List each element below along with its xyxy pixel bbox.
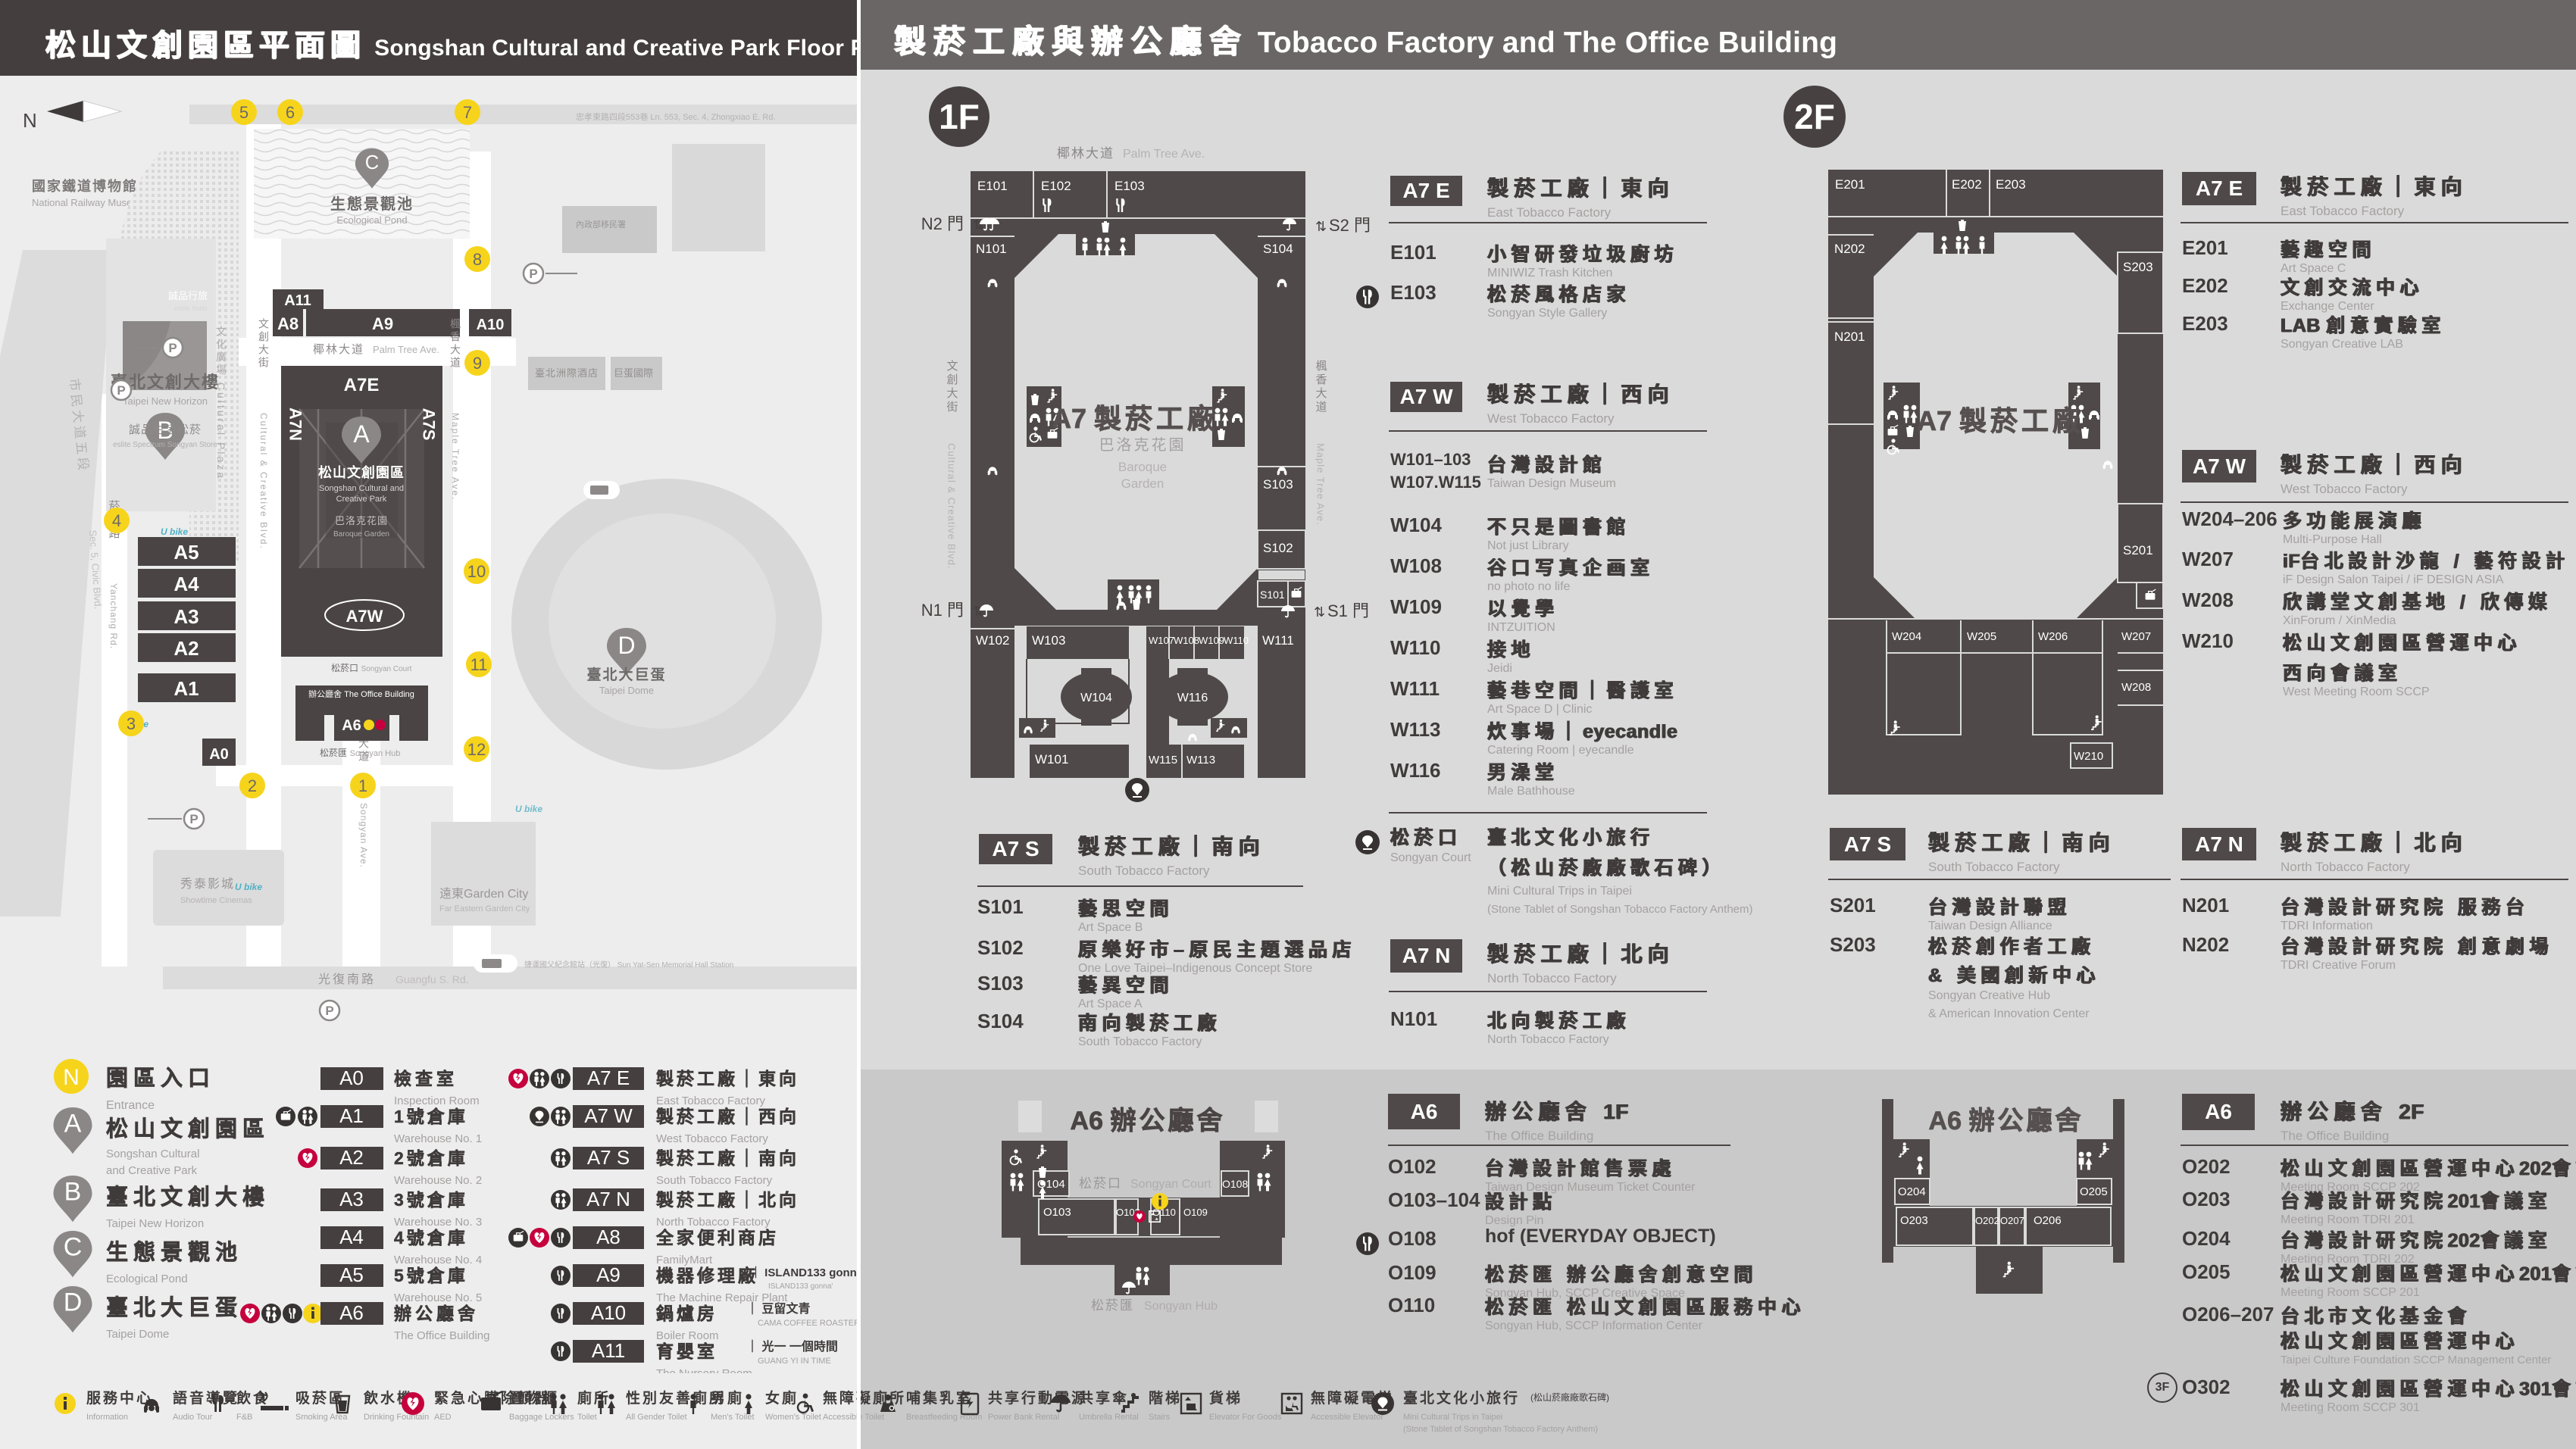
svg-text:2號倉庫: 2號倉庫	[394, 1148, 468, 1168]
svg-text:內政部移民署: 內政部移民署	[576, 219, 626, 230]
svg-text:The Office Building: The Office Building	[394, 1329, 489, 1342]
svg-text:Warehouse No. 5: Warehouse No. 5	[394, 1291, 482, 1304]
svg-text:A9: A9	[372, 314, 393, 333]
svg-text:O103: O103	[1043, 1206, 1071, 1219]
svg-text:Songyan Hub: Songyan Hub	[1144, 1300, 1218, 1313]
svg-text:A7 W: A7 W	[584, 1104, 633, 1127]
svg-text:A10: A10	[591, 1301, 626, 1324]
svg-text:廁所: 廁所	[577, 1389, 611, 1407]
svg-text:eslite Spectrum Songyan Store: eslite Spectrum Songyan Store	[113, 441, 217, 449]
svg-text:Power Bank Rental: Power Bank Rental	[988, 1413, 1059, 1422]
svg-text:W115: W115	[1149, 754, 1177, 767]
svg-text:松菸口: 松菸口	[1079, 1176, 1122, 1191]
svg-text:eslite hotel: eslite hotel	[174, 304, 207, 312]
svg-text:A8: A8	[596, 1226, 621, 1248]
svg-text:哺集乳室: 哺集乳室	[906, 1389, 973, 1407]
svg-text:E103: E103	[1114, 179, 1145, 193]
svg-text:E201: E201	[1835, 177, 1865, 192]
svg-text:U bike: U bike	[161, 526, 188, 537]
svg-text:臺北文創大樓: 臺北文創大樓	[106, 1184, 270, 1210]
svg-text:A6: A6	[342, 717, 361, 734]
svg-text:A6: A6	[339, 1301, 364, 1324]
svg-text:Creative Park: Creative Park	[336, 495, 387, 504]
svg-text:椰林大道: 椰林大道	[313, 343, 364, 356]
svg-text:N101: N101	[976, 242, 1007, 256]
svg-text:Taipei New Horizon: Taipei New Horizon	[123, 395, 208, 407]
svg-text:A4: A4	[174, 573, 199, 595]
svg-text:Palm Tree Ave.: Palm Tree Ave.	[373, 344, 439, 355]
svg-text:Songshan Cultural: Songshan Cultural	[106, 1148, 199, 1160]
svg-text:10: 10	[467, 562, 486, 581]
svg-text:Taipei Dome: Taipei Dome	[599, 685, 654, 696]
svg-text:鍋爐房: 鍋爐房	[656, 1304, 717, 1323]
svg-text:Songshan Cultural and: Songshan Cultural and	[319, 484, 404, 493]
svg-text:2: 2	[248, 776, 257, 795]
svg-text:A8: A8	[277, 314, 299, 333]
svg-text:A4: A4	[339, 1226, 364, 1248]
svg-text:Accessible Elevator: Accessible Elevator	[1311, 1413, 1383, 1422]
svg-text:松菸匯: 松菸匯	[320, 748, 347, 758]
svg-text:A6 辦公廳舍: A6 辦公廳舍	[1071, 1106, 1226, 1135]
svg-text:3: 3	[127, 714, 136, 733]
svg-text:S203: S203	[2123, 260, 2153, 274]
svg-text:A: A	[353, 420, 370, 448]
svg-text:Inspection Room: Inspection Room	[394, 1095, 480, 1107]
svg-text:N201: N201	[1834, 329, 1865, 344]
svg-text:1號倉庫: 1號倉庫	[394, 1107, 468, 1126]
svg-text:A2: A2	[339, 1146, 364, 1169]
svg-text:女廁: 女廁	[765, 1389, 799, 1407]
svg-text:Palm Tree Ave.: Palm Tree Ave.	[1123, 148, 1205, 161]
svg-text:O109: O109	[1183, 1207, 1208, 1218]
svg-text:階梯: 階梯	[1149, 1389, 1182, 1407]
svg-text:巴洛克花園: 巴洛克花園	[335, 515, 388, 526]
svg-text:W101: W101	[1035, 752, 1068, 767]
svg-text:U bike: U bike	[515, 804, 542, 814]
svg-text:W108: W108	[1174, 635, 1199, 646]
svg-text:Guangfu S. Rd.: Guangfu S. Rd.	[395, 973, 469, 985]
svg-text:｜ ISLAND133 gonna': ｜ ISLAND133 gonna'	[750, 1266, 859, 1279]
svg-text:S101: S101	[1260, 589, 1285, 601]
svg-text:O108: O108	[1222, 1178, 1248, 1190]
svg-text:楓香大道: 楓香大道	[449, 318, 461, 370]
svg-text:D: D	[617, 632, 635, 659]
svg-text:男廁: 男廁	[711, 1389, 744, 1407]
svg-text:文創大街: 文創大街	[946, 360, 958, 414]
svg-text:A7W: A7W	[346, 607, 383, 626]
svg-text:O204: O204	[1898, 1185, 1926, 1198]
svg-text:S2 門: S2 門	[1329, 216, 1371, 235]
svg-text:AED: AED	[434, 1413, 452, 1422]
svg-text:Baroque Garden: Baroque Garden	[333, 530, 389, 539]
svg-text:檢查室: 檢查室	[394, 1069, 458, 1088]
svg-text:F&B: F&B	[236, 1413, 252, 1422]
svg-text:4號倉庫: 4號倉庫	[394, 1228, 468, 1248]
svg-text:辦公廳舍: 辦公廳舍	[394, 1304, 479, 1323]
svg-text:Audio Tour: Audio Tour	[173, 1413, 213, 1422]
svg-text:W109: W109	[1199, 635, 1224, 646]
svg-text:Boiler Room: Boiler Room	[656, 1329, 719, 1342]
svg-text:Cultural & Creative Blvd.: Cultural & Creative Blvd.	[258, 413, 269, 550]
svg-text:Maple Tree Ave.: Maple Tree Ave.	[1315, 443, 1327, 526]
svg-text:忠孝東路四段553巷 Ln. 553, Sec. 4, Z: 忠孝東路四段553巷 Ln. 553, Sec. 4, Zhongxiao E.…	[576, 111, 776, 122]
svg-text:W110: W110	[1224, 635, 1249, 646]
svg-text:East Tobacco Factory: East Tobacco Factory	[656, 1095, 765, 1107]
svg-text:Warehouse No. 3: Warehouse No. 3	[394, 1216, 482, 1229]
svg-text:A7E: A7E	[344, 375, 380, 395]
svg-text:誠品行旅: 誠品行旅	[168, 290, 208, 301]
svg-text:All Gender Toilet: All Gender Toilet	[626, 1413, 687, 1422]
svg-text:製菸工廠｜北向: 製菸工廠｜北向	[655, 1190, 799, 1210]
svg-text:W210: W210	[2074, 750, 2103, 763]
svg-text:語音導覽: 語音導覽	[173, 1389, 239, 1407]
svg-text:W204: W204	[1892, 630, 1921, 643]
svg-text:松菸匯: 松菸匯	[1091, 1298, 1134, 1313]
svg-text:West Tobacco Factory: West Tobacco Factory	[656, 1132, 768, 1145]
svg-text:N1 門: N1 門	[921, 601, 964, 620]
svg-text:巨蛋國際: 巨蛋國際	[614, 367, 653, 379]
svg-text:U bike: U bike	[235, 882, 262, 892]
svg-text:E203: E203	[1996, 177, 2026, 192]
svg-text:椰林大道: 椰林大道	[1057, 146, 1114, 161]
svg-text:A3: A3	[339, 1188, 364, 1210]
svg-text:W205: W205	[1967, 630, 1996, 643]
svg-text:松菸口: 松菸口	[331, 663, 358, 673]
svg-text:A7 製菸工廠: A7 製菸工廠	[1052, 403, 1218, 434]
svg-text:O203: O203	[1900, 1214, 1928, 1227]
svg-text:1F: 1F	[939, 97, 980, 136]
svg-text:A11: A11	[592, 1339, 625, 1362]
svg-text:A10: A10	[477, 317, 505, 333]
svg-text:Taipei New Horizon: Taipei New Horizon	[106, 1217, 204, 1230]
svg-text:Smoking Area: Smoking Area	[295, 1413, 348, 1422]
svg-text:and Creative Park: and Creative Park	[106, 1164, 198, 1177]
svg-text:Songyan Ave.: Songyan Ave.	[358, 803, 369, 868]
svg-text:A7 製菸工廠: A7 製菸工廠	[1917, 405, 2084, 436]
svg-text:A2: A2	[174, 637, 199, 660]
svg-text:A1: A1	[339, 1104, 364, 1127]
svg-text:E202: E202	[1952, 177, 1982, 192]
svg-text:Women's Toilet: Women's Toilet	[765, 1413, 821, 1422]
svg-text:A7S: A7S	[420, 408, 439, 441]
svg-text:Warehouse No. 2: Warehouse No. 2	[394, 1174, 482, 1187]
svg-text:9: 9	[473, 354, 482, 373]
svg-text:A7 N: A7 N	[586, 1188, 630, 1210]
svg-text:Maple Tree Ave.: Maple Tree Ave.	[450, 413, 461, 501]
svg-text:臺北大巨蛋: 臺北大巨蛋	[586, 666, 666, 683]
svg-text:服務中心: 服務中心	[86, 1389, 153, 1407]
svg-text:C: C	[64, 1232, 83, 1261]
svg-text:Songyan Court: Songyan Court	[1130, 1178, 1211, 1191]
svg-text:A7 E: A7 E	[587, 1066, 630, 1089]
svg-text:Songyan Court: Songyan Court	[361, 665, 412, 673]
svg-text:Ecological Pond: Ecological Pond	[336, 214, 407, 226]
svg-text:生態景觀池: 生態景觀池	[106, 1239, 242, 1265]
svg-text:共享傘: 共享傘	[1079, 1389, 1129, 1407]
svg-text:Cultural & Creative Blvd.: Cultural & Creative Blvd.	[946, 443, 958, 570]
svg-text:共享行動電源: 共享行動電源	[988, 1389, 1088, 1407]
svg-text:Toilet: Toilet	[577, 1413, 597, 1422]
svg-text:O205: O205	[2080, 1185, 2108, 1198]
svg-text:生態景觀池: 生態景觀池	[330, 195, 414, 213]
svg-text:O206: O206	[2034, 1214, 2062, 1227]
svg-text:⇅: ⇅	[1314, 604, 1325, 620]
svg-text:Warehouse No. 1: Warehouse No. 1	[394, 1132, 482, 1145]
svg-text:育嬰室: 育嬰室	[656, 1341, 717, 1361]
svg-text:S104: S104	[1263, 242, 1293, 256]
svg-text:松山文創園區: 松山文創園區	[106, 1116, 270, 1141]
svg-text:A11: A11	[284, 292, 311, 309]
svg-text:N2 門: N2 門	[921, 214, 964, 233]
svg-text:A3: A3	[174, 605, 199, 628]
svg-text:Umbrella Rental: Umbrella Rental	[1079, 1413, 1139, 1422]
svg-text:A0: A0	[339, 1066, 364, 1089]
svg-text:A7N: A7N	[286, 408, 305, 441]
svg-text:S1 門: S1 門	[1327, 601, 1369, 620]
svg-text:A: A	[64, 1109, 82, 1138]
svg-text:GUANG YI IN TIME: GUANG YI IN TIME	[758, 1357, 831, 1366]
svg-text:Stairs: Stairs	[1149, 1413, 1171, 1422]
svg-text:秀泰影城: 秀泰影城	[180, 877, 235, 891]
svg-text:Ecological Pond: Ecological Pond	[106, 1273, 188, 1285]
svg-text:South Tobacco Factory: South Tobacco Factory	[656, 1174, 773, 1187]
svg-text:The Nursery Room: The Nursery Room	[656, 1367, 752, 1373]
svg-text:臺北文化小旅行: 臺北文化小旅行	[1403, 1389, 1520, 1407]
svg-text:(松山菸廠廠歌石碑): (松山菸廠廠歌石碑)	[1530, 1391, 1609, 1403]
svg-text:W103: W103	[1032, 633, 1065, 648]
svg-text:E102: E102	[1041, 179, 1071, 193]
svg-text:飲食: 飲食	[236, 1389, 270, 1407]
svg-text:｜ 光一 一個時間: ｜ 光一 一個時間	[746, 1339, 838, 1354]
svg-text:製菸工廠｜東向: 製菸工廠｜東向	[655, 1069, 799, 1088]
svg-text:製菸工廠｜西向: 製菸工廠｜西向	[655, 1107, 799, 1126]
svg-text:W207: W207	[2121, 630, 2151, 643]
svg-text:W116: W116	[1177, 692, 1208, 704]
svg-text:Information: Information	[86, 1413, 128, 1422]
svg-text:North Tobacco Factory: North Tobacco Factory	[656, 1216, 771, 1229]
svg-text:W102: W102	[976, 633, 1009, 648]
svg-text:A1: A1	[174, 677, 199, 700]
svg-text:Far Eastern Garden City: Far Eastern Garden City	[439, 904, 530, 913]
svg-text:CAMA COFFEE ROASTERS: CAMA COFFEE ROASTERS	[758, 1319, 859, 1328]
svg-text:機器修理廠: 機器修理廠	[656, 1266, 758, 1285]
svg-text:國家鐵道博物館: 國家鐵道博物館	[32, 178, 138, 194]
svg-text:Drinking Fountain: Drinking Fountain	[364, 1413, 429, 1422]
svg-text:文創大街: 文創大街	[258, 318, 270, 370]
svg-text:11: 11	[470, 655, 488, 674]
svg-text:S103: S103	[1263, 477, 1293, 492]
svg-text:S201: S201	[2123, 543, 2153, 557]
svg-text:全家便利商店: 全家便利商店	[655, 1228, 779, 1248]
svg-text:A5: A5	[174, 541, 199, 564]
svg-text:臺北洲際酒店: 臺北洲際酒店	[535, 367, 599, 379]
svg-text:3號倉庫: 3號倉庫	[394, 1190, 468, 1210]
svg-text:S102: S102	[1263, 541, 1293, 555]
svg-text:Accessible Toilet: Accessible Toilet	[823, 1413, 884, 1422]
svg-text:(Stone Tablet of Songshan Toba: (Stone Tablet of Songshan Tobacco Factor…	[1403, 1425, 1598, 1434]
svg-text:捷運國父紀念館站（光復） Sun Yat-Sen Memor: 捷運國父紀念館站（光復） Sun Yat-Sen Memorial Hall S…	[524, 960, 733, 970]
svg-text:4: 4	[112, 511, 121, 530]
svg-text:2F: 2F	[1794, 97, 1835, 136]
svg-text:｜ 豆留文青: ｜ 豆留文青	[746, 1301, 810, 1316]
svg-text:辦公廳舍 The Office Building: 辦公廳舍 The Office Building	[308, 689, 414, 699]
svg-text:光復南路: 光復南路	[318, 973, 376, 986]
svg-text:Songyan Hub: Songyan Hub	[350, 749, 401, 758]
svg-text:A7 S: A7 S	[587, 1146, 630, 1169]
svg-text:A5: A5	[339, 1263, 364, 1286]
svg-text:A0: A0	[209, 746, 229, 763]
svg-text:W113: W113	[1186, 754, 1215, 767]
svg-text:W104: W104	[1080, 692, 1112, 704]
svg-text:N: N	[63, 1065, 80, 1090]
svg-text:Showtime Cinemas: Showtime Cinemas	[180, 896, 252, 905]
svg-text:N202: N202	[1834, 242, 1865, 256]
svg-text:W206: W206	[2038, 630, 2068, 643]
svg-text:園區入口: 園區入口	[106, 1066, 215, 1091]
svg-text:E101: E101	[977, 179, 1008, 193]
svg-text:Taipei Dome: Taipei Dome	[106, 1328, 169, 1341]
svg-text:6: 6	[286, 103, 295, 122]
svg-text:5號倉庫: 5號倉庫	[394, 1266, 468, 1285]
svg-text:C: C	[365, 152, 379, 173]
svg-text:Warehouse No. 4: Warehouse No. 4	[394, 1254, 482, 1266]
svg-text:巴洛克花園: 巴洛克花園	[1099, 436, 1186, 454]
svg-text:Mini Cultural Trips in Taipei: Mini Cultural Trips in Taipei	[1403, 1413, 1502, 1422]
svg-text:N: N	[23, 109, 37, 132]
svg-text:O207: O207	[2000, 1215, 2024, 1226]
svg-text:Yanchang Rd.: Yanchang Rd.	[108, 583, 119, 649]
svg-text:12: 12	[467, 740, 486, 759]
svg-text:文化廣場 Cultural Plaza: 文化廣場 Cultural Plaza	[215, 326, 227, 480]
svg-text:1: 1	[358, 776, 367, 795]
svg-text:A9: A9	[596, 1263, 621, 1286]
svg-text:W208: W208	[2121, 681, 2151, 694]
svg-text:製菸工廠｜南向: 製菸工廠｜南向	[655, 1148, 799, 1168]
svg-text:Elevator For Goods: Elevator For Goods	[1209, 1413, 1282, 1422]
svg-text:松山文創園區: 松山文創園區	[318, 464, 405, 480]
svg-text:楓香大道: 楓香大道	[1315, 360, 1327, 414]
svg-text:誠品生活松菸: 誠品生活松菸	[129, 423, 202, 436]
svg-text:貨梯: 貨梯	[1209, 1389, 1243, 1407]
svg-text:ISLAND133 gonna': ISLAND133 gonna'	[768, 1282, 833, 1291]
svg-text:Entrance: Entrance	[106, 1099, 155, 1112]
svg-text:5: 5	[239, 103, 249, 122]
svg-text:W111: W111	[1262, 633, 1294, 648]
svg-text:B: B	[64, 1177, 82, 1206]
svg-text:吸菸區: 吸菸區	[295, 1389, 345, 1407]
svg-text:7: 7	[463, 103, 472, 122]
svg-text:臺北大巨蛋: 臺北大巨蛋	[106, 1295, 242, 1320]
svg-text:Baroque: Baroque	[1118, 460, 1167, 474]
svg-text:W107: W107	[1149, 635, 1174, 646]
svg-text:FamilyMart: FamilyMart	[656, 1254, 713, 1266]
svg-text:⇅: ⇅	[1315, 219, 1327, 234]
svg-text:遠東Garden City: 遠東Garden City	[439, 887, 528, 901]
svg-text:無障礙廁所: 無障礙廁所	[823, 1389, 906, 1407]
svg-text:8: 8	[473, 250, 482, 269]
svg-text:A6 辦公廳舍: A6 辦公廳舍	[1929, 1106, 2084, 1135]
svg-text:D: D	[64, 1288, 83, 1316]
svg-text:O202: O202	[1975, 1215, 1999, 1226]
svg-text:Garden: Garden	[1121, 476, 1165, 491]
